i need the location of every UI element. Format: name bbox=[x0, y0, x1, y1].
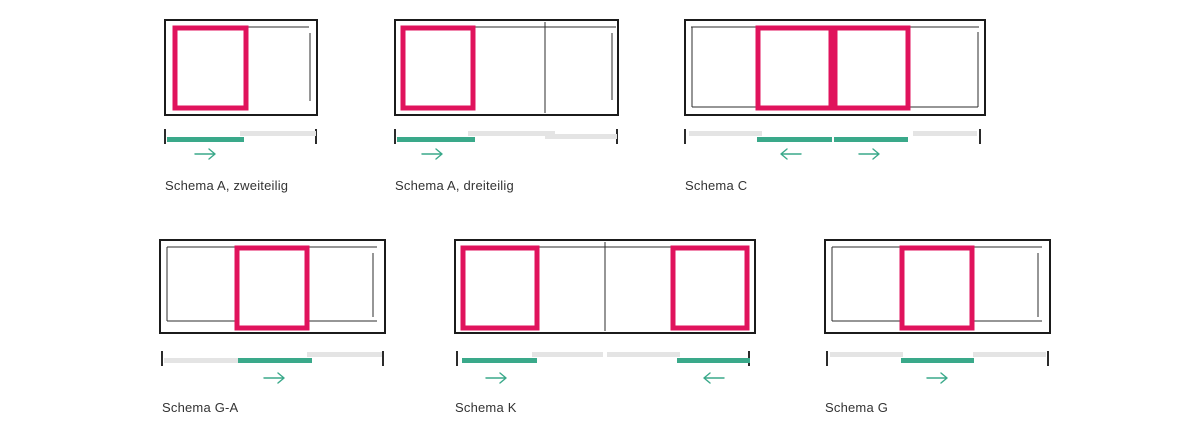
track-bar-gray bbox=[607, 352, 680, 357]
schema-diagram bbox=[450, 235, 762, 390]
sliding-panel bbox=[175, 28, 246, 108]
schema-label: Schema C bbox=[685, 179, 747, 193]
track-bar-gray bbox=[307, 352, 382, 357]
track-bar-gray bbox=[532, 352, 603, 357]
schema-label: Schema G bbox=[825, 401, 888, 415]
arrow-right-icon bbox=[422, 149, 442, 159]
track-bar-green bbox=[901, 358, 974, 363]
arrow-right-icon bbox=[859, 149, 879, 159]
sliding-panel bbox=[403, 28, 473, 108]
sliding-panel bbox=[237, 248, 307, 328]
track-bar-gray bbox=[973, 352, 1046, 357]
arrow-left-icon bbox=[781, 149, 801, 159]
sliding-panel bbox=[902, 248, 972, 328]
sliding-panel bbox=[463, 248, 537, 328]
track-bar-green bbox=[397, 137, 475, 142]
arrow-right-icon bbox=[486, 373, 506, 383]
sliding-panel bbox=[673, 248, 747, 328]
sliding-schemas-panel: Schema A, zweiteiligSchema A, dreiteilig… bbox=[0, 0, 1200, 429]
track-bar-gray bbox=[240, 131, 316, 136]
sliding-panel bbox=[835, 28, 908, 108]
track-bar-green bbox=[462, 358, 537, 363]
schema-block-c: Schema C bbox=[680, 15, 992, 170]
schema-diagram bbox=[680, 15, 992, 170]
schema-diagram bbox=[155, 235, 392, 390]
track-bar-green bbox=[167, 137, 244, 142]
arrow-right-icon bbox=[927, 373, 947, 383]
schema-block-k: Schema K bbox=[450, 235, 762, 390]
schema-diagram bbox=[160, 15, 324, 170]
schema-block-g: Schema G bbox=[820, 235, 1057, 390]
track-bar-green bbox=[677, 358, 750, 363]
sliding-panel bbox=[758, 28, 831, 108]
track-bar-gray bbox=[468, 131, 555, 136]
arrow-right-icon bbox=[195, 149, 215, 159]
schema-diagram bbox=[820, 235, 1057, 390]
schema-label: Schema K bbox=[455, 401, 517, 415]
schema-block-g-a: Schema G-A bbox=[155, 235, 392, 390]
track-bar-gray bbox=[913, 131, 977, 136]
track-bar-gray bbox=[689, 131, 762, 136]
schema-label: Schema A, dreiteilig bbox=[395, 179, 514, 193]
track-bar-green bbox=[238, 358, 312, 363]
arrow-right-icon bbox=[264, 373, 284, 383]
schema-label: Schema G-A bbox=[162, 401, 238, 415]
track-bar-gray bbox=[830, 352, 903, 357]
arrow-left-icon bbox=[704, 373, 724, 383]
track-bar-green bbox=[834, 137, 908, 142]
track-bar-gray bbox=[164, 358, 238, 363]
track-bar-green bbox=[757, 137, 832, 142]
schema-diagram bbox=[390, 15, 625, 170]
schema-label: Schema A, zweiteilig bbox=[165, 179, 288, 193]
schema-block-a-dreiteilig: Schema A, dreiteilig bbox=[390, 15, 625, 170]
schema-block-a-zweiteilig: Schema A, zweiteilig bbox=[160, 15, 324, 170]
track-bar-gray bbox=[545, 134, 617, 139]
